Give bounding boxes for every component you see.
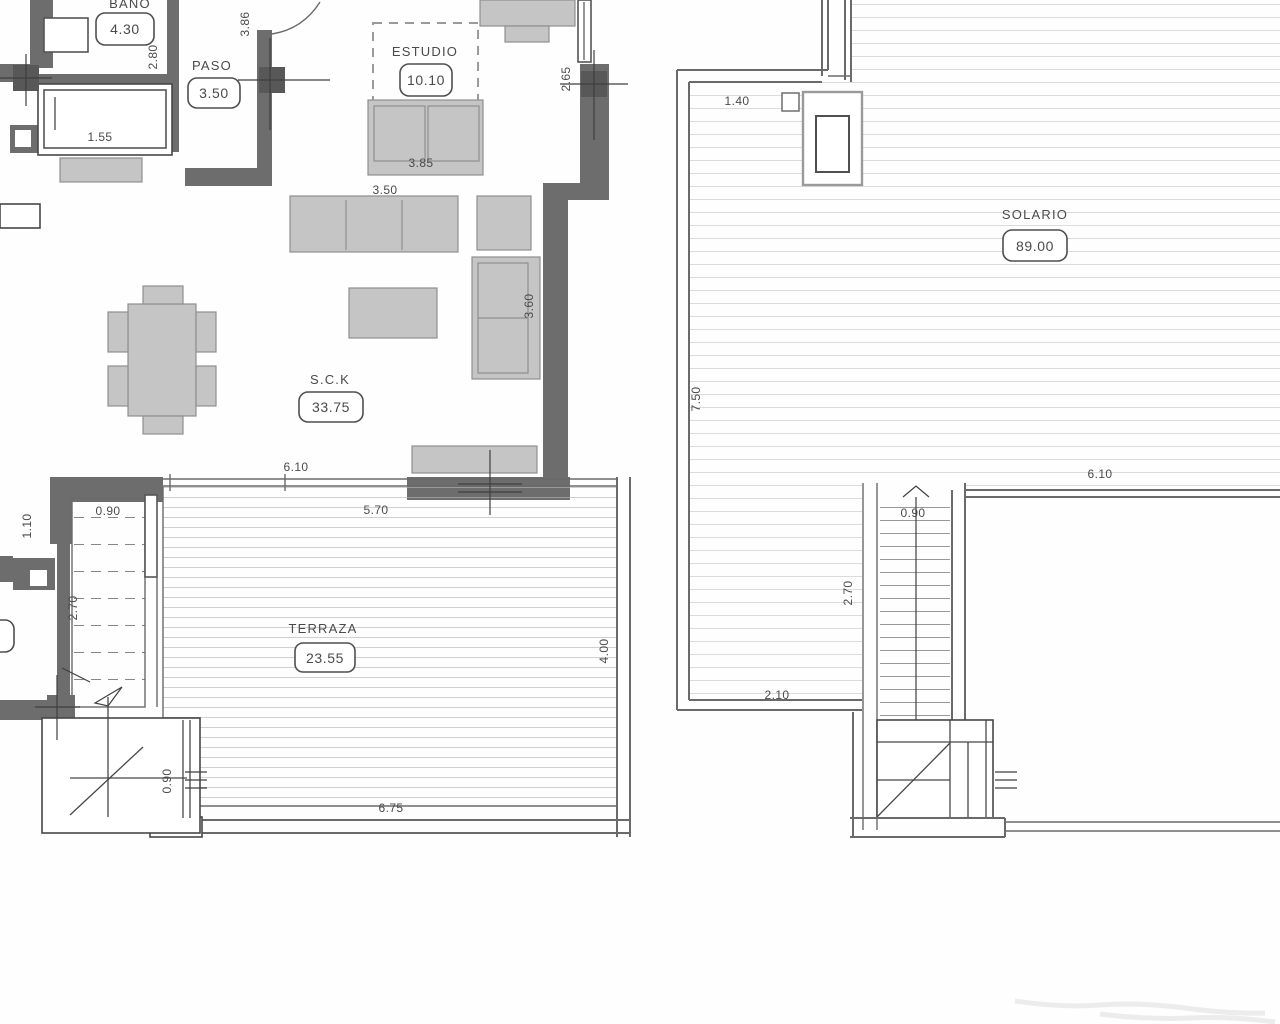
right-plan: 1.40 SOLARIO 89.00 7.50 0.90 2.70 2.10 6… bbox=[677, 0, 1280, 837]
dim-stairs-width: 0.90 bbox=[96, 504, 121, 518]
sofa-cushion bbox=[428, 106, 479, 161]
wall bbox=[50, 498, 72, 544]
wall bbox=[0, 556, 13, 582]
dim-room-top: 6.10 bbox=[1088, 467, 1113, 481]
wall bbox=[0, 700, 47, 720]
coffee-table bbox=[349, 288, 437, 338]
tv-cabinet bbox=[412, 446, 537, 473]
dim-closet: 1.55 bbox=[88, 130, 113, 144]
area-value-terraza: 23.55 bbox=[306, 650, 344, 666]
dim-chimney-offset: 1.40 bbox=[725, 94, 750, 108]
door-arc bbox=[272, 2, 320, 34]
dim-planter: 0.90 bbox=[160, 769, 174, 794]
dim-entry: 3.86 bbox=[238, 12, 252, 37]
dim-stairs-base: 2.10 bbox=[765, 688, 790, 702]
dim-estudio-window: 2.65 bbox=[559, 67, 573, 92]
planter-outline bbox=[877, 720, 993, 818]
terraza-decking bbox=[163, 487, 617, 805]
vent-box bbox=[782, 93, 799, 111]
wall bbox=[543, 183, 568, 479]
stair-up-arrow bbox=[903, 486, 929, 497]
stair-treads-hidden bbox=[74, 510, 145, 692]
desk bbox=[480, 0, 575, 26]
chair bbox=[196, 312, 216, 352]
area-value-bano: 4.30 bbox=[110, 21, 140, 37]
chimney-inner bbox=[816, 116, 849, 172]
sofa bbox=[290, 196, 458, 252]
wall-fragment bbox=[0, 204, 40, 228]
planter-left bbox=[42, 697, 207, 833]
dining-table bbox=[128, 304, 196, 416]
stair-treads bbox=[880, 507, 950, 747]
area-value-paso: 3.50 bbox=[199, 85, 229, 101]
cutoff-area-badge bbox=[0, 620, 14, 652]
dim-sofa: 3.50 bbox=[373, 183, 398, 197]
dim-bano-depth: 2.80 bbox=[146, 45, 160, 70]
chair bbox=[108, 312, 128, 352]
cabinet bbox=[60, 158, 142, 182]
room-label-paso: PASO bbox=[192, 58, 232, 73]
dim-lsofa: 3.60 bbox=[522, 294, 536, 319]
floorplan-page: BAÑO 4.30 2.80 3.86 1.55 PASO 3.50 ESTUD… bbox=[0, 0, 1280, 1024]
chair bbox=[108, 366, 128, 406]
sofa-cushion bbox=[374, 106, 425, 161]
solario-decking bbox=[689, 0, 1280, 700]
desk-chair bbox=[505, 26, 549, 42]
dim-terraza-top: 5.70 bbox=[364, 503, 389, 517]
dim-estudio-bed: 3.85 bbox=[409, 156, 434, 170]
dim-stairs-width-r: 0.90 bbox=[901, 506, 926, 520]
room-label-solario: SOLARIO bbox=[1002, 207, 1068, 222]
room-label-terraza: TERRAZA bbox=[288, 621, 357, 636]
room-label-sck: S.C.K bbox=[310, 372, 350, 387]
lower-room bbox=[952, 483, 1280, 790]
dim-stairs-run-r: 2.70 bbox=[841, 581, 855, 606]
room-label-estudio: ESTUDIO bbox=[392, 44, 458, 59]
wall bbox=[185, 168, 272, 186]
planter-right bbox=[877, 720, 1017, 818]
room-label-bano: BAÑO bbox=[109, 0, 151, 11]
chair bbox=[196, 366, 216, 406]
left-plan: BAÑO 4.30 2.80 3.86 1.55 PASO 3.50 ESTUD… bbox=[0, 0, 630, 837]
wall-notch bbox=[15, 130, 31, 147]
terraza bbox=[150, 474, 630, 837]
wall bbox=[38, 74, 172, 84]
area-value-solario: 89.00 bbox=[1016, 238, 1054, 254]
floorplan-drawing: BAÑO 4.30 2.80 3.86 1.55 PASO 3.50 ESTUD… bbox=[0, 0, 1280, 1024]
chair bbox=[143, 286, 183, 304]
dim-solario-side: 7.50 bbox=[689, 387, 703, 412]
planter-outline bbox=[42, 718, 200, 833]
bath-fixture bbox=[44, 18, 88, 52]
bano-room bbox=[44, 18, 88, 52]
area-value-estudio: 10.10 bbox=[407, 72, 445, 88]
dim-terraza-bottom: 6.75 bbox=[379, 801, 404, 815]
armchair bbox=[477, 196, 531, 250]
wall-notch bbox=[30, 570, 47, 586]
dim-sck-opening: 6.10 bbox=[284, 460, 309, 474]
dim-stairs-run: 2.70 bbox=[66, 596, 80, 621]
dim-terraza-side: 4.00 bbox=[597, 639, 611, 664]
wall bbox=[57, 542, 70, 710]
window bbox=[145, 495, 157, 577]
watermark bbox=[1015, 1001, 1275, 1022]
area-value-sck: 33.75 bbox=[312, 399, 350, 415]
sck-room bbox=[108, 196, 540, 473]
chair bbox=[143, 416, 183, 434]
dim-landing: 1.10 bbox=[20, 514, 34, 539]
